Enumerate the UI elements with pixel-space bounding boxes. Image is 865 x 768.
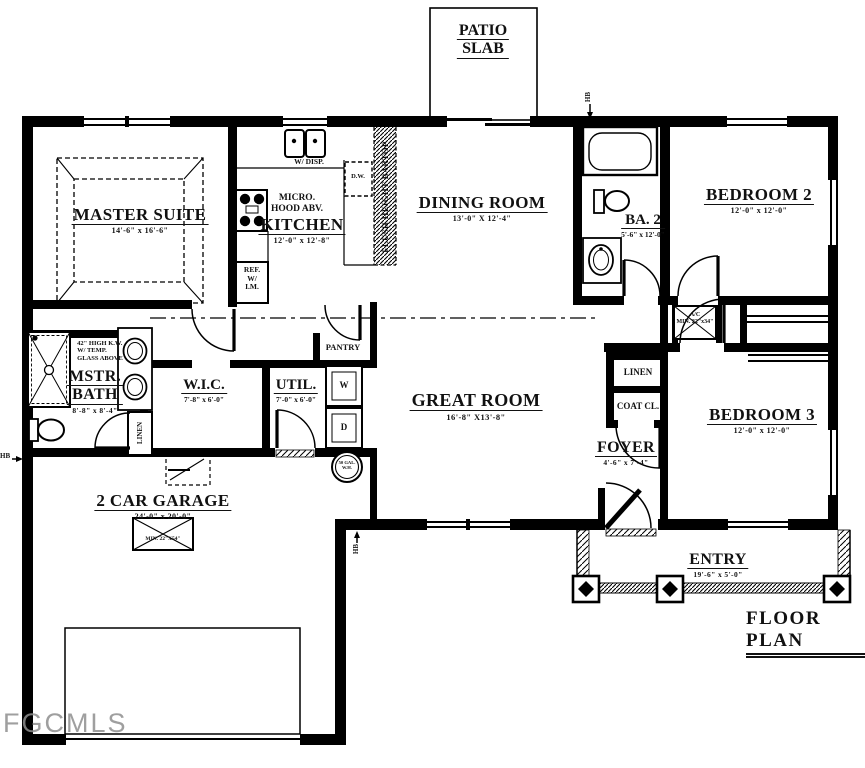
foyer-label: FOYER 4'-6" x 7'-4" (595, 439, 657, 467)
microwave-note: MICRO. HOOD ABV. (271, 193, 323, 215)
great-room-label: GREAT ROOM 16'-8" X13'-8" (410, 391, 543, 423)
knee-wall-note: 42" HIGH K.W. W/ TEMP. GLASS ABOVE (77, 340, 123, 362)
master-bath-label: MSTR. BATH 8'-8" x 8'-4" (67, 368, 123, 415)
floor-plan-linework (0, 0, 865, 768)
pantry-label: PANTRY (326, 343, 361, 353)
kitchen-sink (285, 130, 325, 157)
refrigerator-label: REF. W/ I.M. (244, 266, 260, 292)
dishwasher-label: D.W. (351, 173, 365, 180)
attic-access-garage (133, 518, 193, 550)
hose-bib-label-patio: HB (584, 92, 592, 102)
linen-hall-label: LINEN (624, 367, 653, 377)
toilet-bath2 (594, 190, 629, 213)
water-heater-label: 50 GAL. W.H. (339, 460, 356, 471)
ac-unit-label: A/C MIN. 22"x34" (677, 312, 714, 326)
toilet-master (29, 419, 64, 441)
coat-closet-label: COAT CL. (617, 401, 659, 411)
master-suite-label: MASTER SUITE 14'-6" x 16'-6" (72, 206, 209, 236)
dining-room-label: DINING ROOM 13'-0" X 12'-4" (417, 194, 548, 224)
patio-line2: SLAB (457, 40, 509, 58)
linen-master-label: LINEN (136, 422, 144, 444)
front-door-sill (606, 529, 656, 536)
dryer-label: D (341, 422, 348, 432)
attic-pulldown (166, 455, 210, 485)
hose-bib-label-left: HB (0, 453, 10, 461)
hose-bib-markers (12, 104, 593, 543)
utility-step-hatch (276, 450, 314, 457)
hose-bib-label-front: HB (352, 544, 360, 554)
sink-disposal-label: W/ DISP. (294, 158, 324, 167)
entry-label: ENTRY 19'-6" x 5'-0" (687, 551, 748, 579)
bartop-label: FLUSH HEIGHT BARTOP (380, 141, 390, 252)
bathtub (583, 127, 657, 175)
sheet-title: FLOOR PLAN (746, 608, 865, 658)
util-label: UTIL. 7'-0" x 6'-0" (274, 377, 318, 404)
bath2-label: BA. 2 5'-6" x 12'-0" (621, 212, 665, 239)
attic-access-label: MIN. 22"X54" (145, 536, 180, 542)
kitchen-label: KITCHEN 12'-0" x 12'-8" (258, 216, 345, 246)
patio-line1: PATIO (457, 22, 509, 40)
floor-plan-sheet: PATIO SLAB MASTER SUITE 14'-6" x 16'-6" … (0, 0, 865, 768)
garage-label: 2 CAR GARAGE 24'-0" x 20'-0" (94, 492, 231, 522)
patio-slab-label: PATIO SLAB (457, 22, 509, 59)
shower (28, 332, 70, 407)
wic-label: W.I.C. 7'-8" x 6'-0" (181, 377, 227, 404)
bedroom2-label: BEDROOM 2 12'-0" x 12'-0" (704, 186, 814, 216)
washer-label: W (340, 380, 349, 390)
mls-watermark: FGCMLS (3, 708, 128, 739)
vanity-bath2 (583, 238, 621, 283)
bedroom3-label: BEDROOM 3 12'-0" x 12'-0" (707, 406, 817, 436)
